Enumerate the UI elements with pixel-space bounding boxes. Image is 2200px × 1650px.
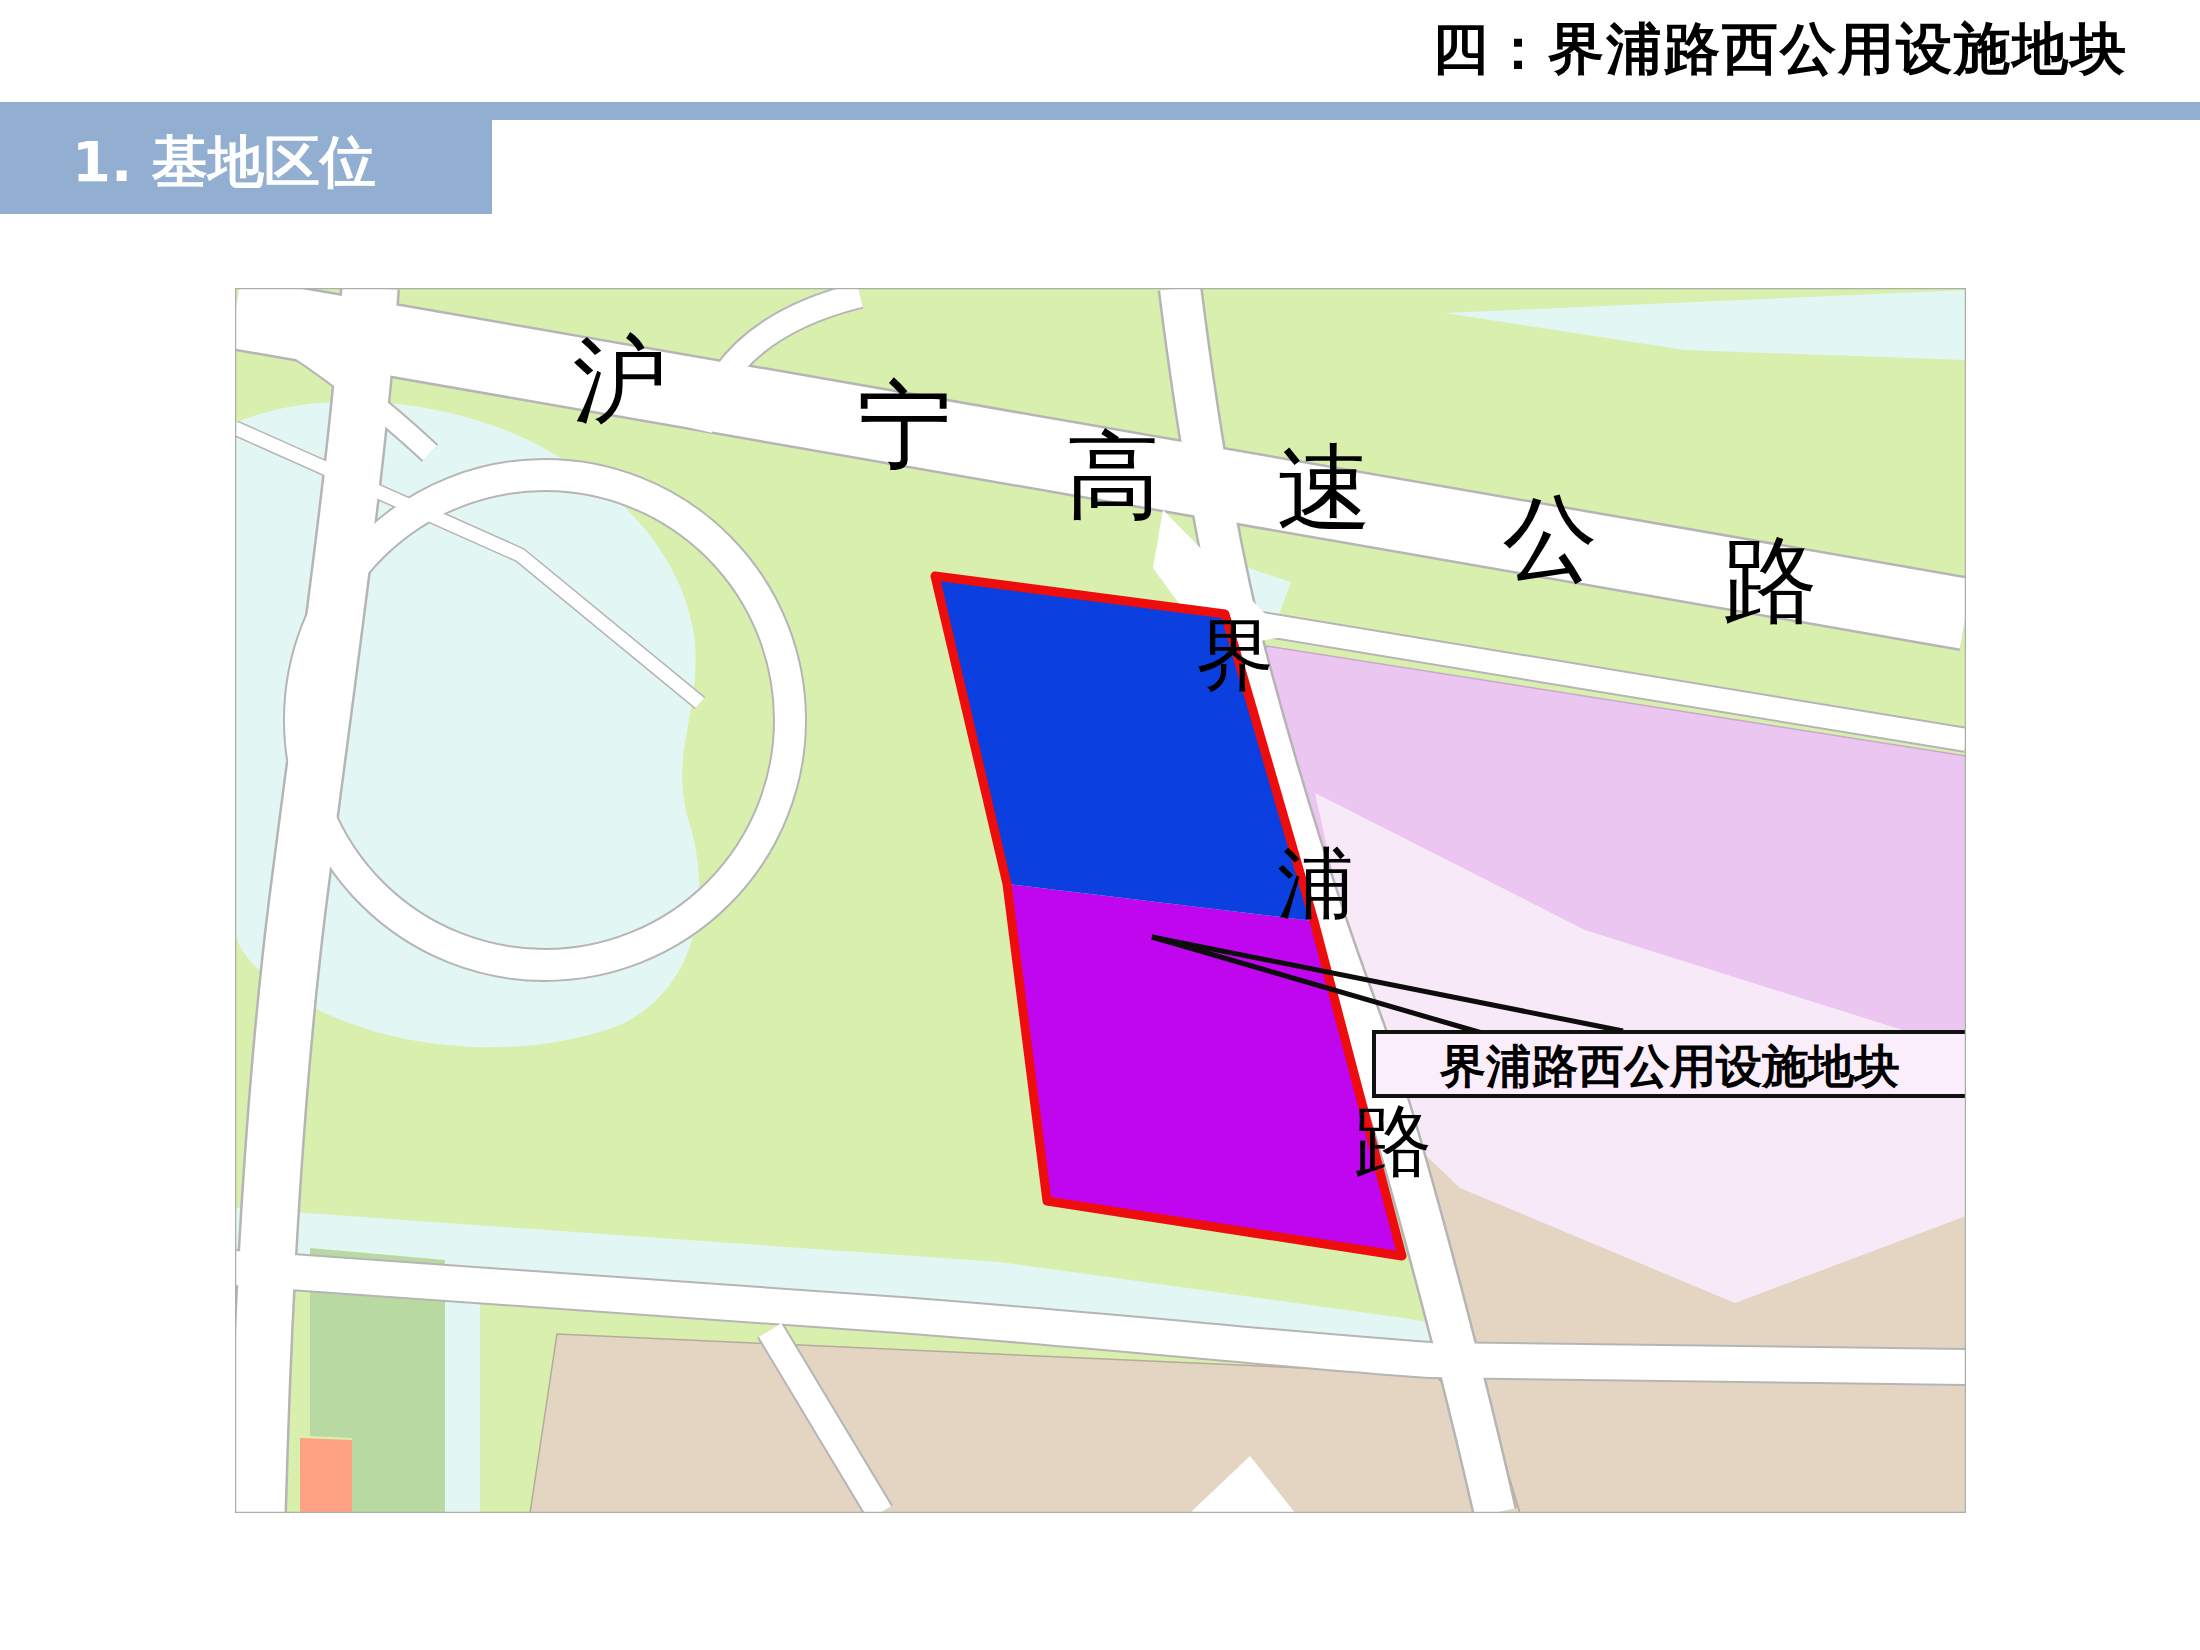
highway-char: 路 — [1723, 525, 1818, 635]
water-canal-vertical — [440, 1276, 480, 1513]
section-title: 1. 基地区位 — [72, 125, 376, 201]
highway-char: 速 — [1277, 433, 1372, 543]
jiepu-char: 界 — [1196, 610, 1274, 700]
jiepu-char: 路 — [1354, 1096, 1432, 1186]
highway-char: 高 — [1066, 421, 1161, 531]
location-map: 沪 宁 高 速 公 路 界 浦 路 界浦路西公用设施地块 — [235, 288, 1966, 1513]
page-title: 四：界浦路西公用设施地块 — [1432, 12, 2128, 88]
callout-label: 界浦路西公用设施地块 — [1439, 1039, 1900, 1093]
highway-char: 沪 — [573, 325, 668, 435]
slide: 四：界浦路西公用设施地块 1. 基地区位 — [0, 0, 2200, 1650]
jiepu-char: 浦 — [1277, 838, 1355, 928]
section-header: 1. 基地区位 — [0, 102, 492, 214]
highway-char: 宁 — [858, 370, 953, 480]
highway-char: 公 — [1503, 483, 1598, 593]
parcel-salmon — [300, 1438, 352, 1513]
